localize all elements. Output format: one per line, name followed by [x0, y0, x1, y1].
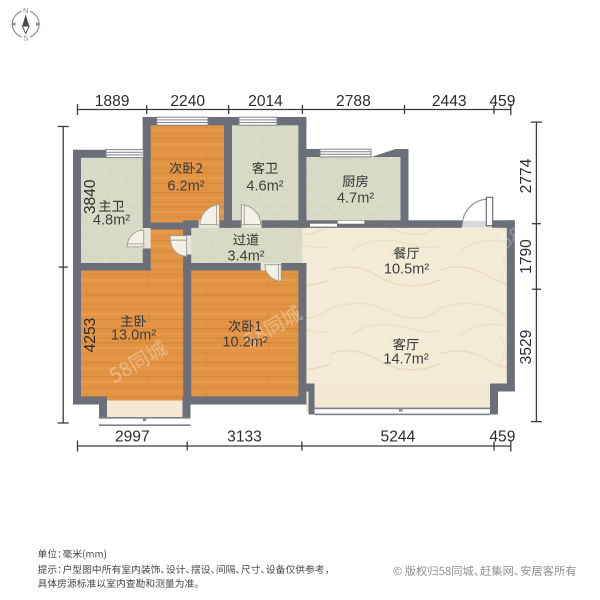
svg-text:5244: 5244 — [381, 429, 416, 446]
svg-text:4.6m²: 4.6m² — [246, 179, 283, 195]
svg-text:1889: 1889 — [95, 93, 130, 110]
svg-text:1790: 1790 — [518, 239, 535, 274]
svg-text:2240: 2240 — [170, 93, 205, 110]
svg-text:4.7m²: 4.7m² — [337, 191, 374, 207]
svg-text:6.2m²: 6.2m² — [167, 179, 204, 195]
svg-text:2788: 2788 — [336, 93, 371, 110]
svg-text:459: 459 — [489, 93, 515, 110]
svg-text:2443: 2443 — [432, 93, 467, 110]
svg-text:10.2m²: 10.2m² — [222, 335, 267, 351]
svg-text:2774: 2774 — [518, 158, 535, 193]
svg-text:10.5m²: 10.5m² — [384, 262, 429, 278]
svg-text:3840: 3840 — [82, 179, 99, 214]
svg-text:4253: 4253 — [82, 318, 99, 353]
svg-text:S: S — [23, 34, 28, 43]
svg-text:3529: 3529 — [518, 330, 535, 365]
svg-text:3.4m²: 3.4m² — [227, 249, 264, 265]
svg-text:2997: 2997 — [115, 429, 150, 446]
svg-text:2014: 2014 — [248, 93, 283, 110]
svg-text:459: 459 — [489, 429, 515, 446]
svg-text:13.0m²: 13.0m² — [111, 328, 156, 344]
svg-text:N: N — [23, 6, 28, 15]
svg-text:3133: 3133 — [227, 429, 262, 446]
svg-text:14.7m²: 14.7m² — [383, 351, 428, 367]
